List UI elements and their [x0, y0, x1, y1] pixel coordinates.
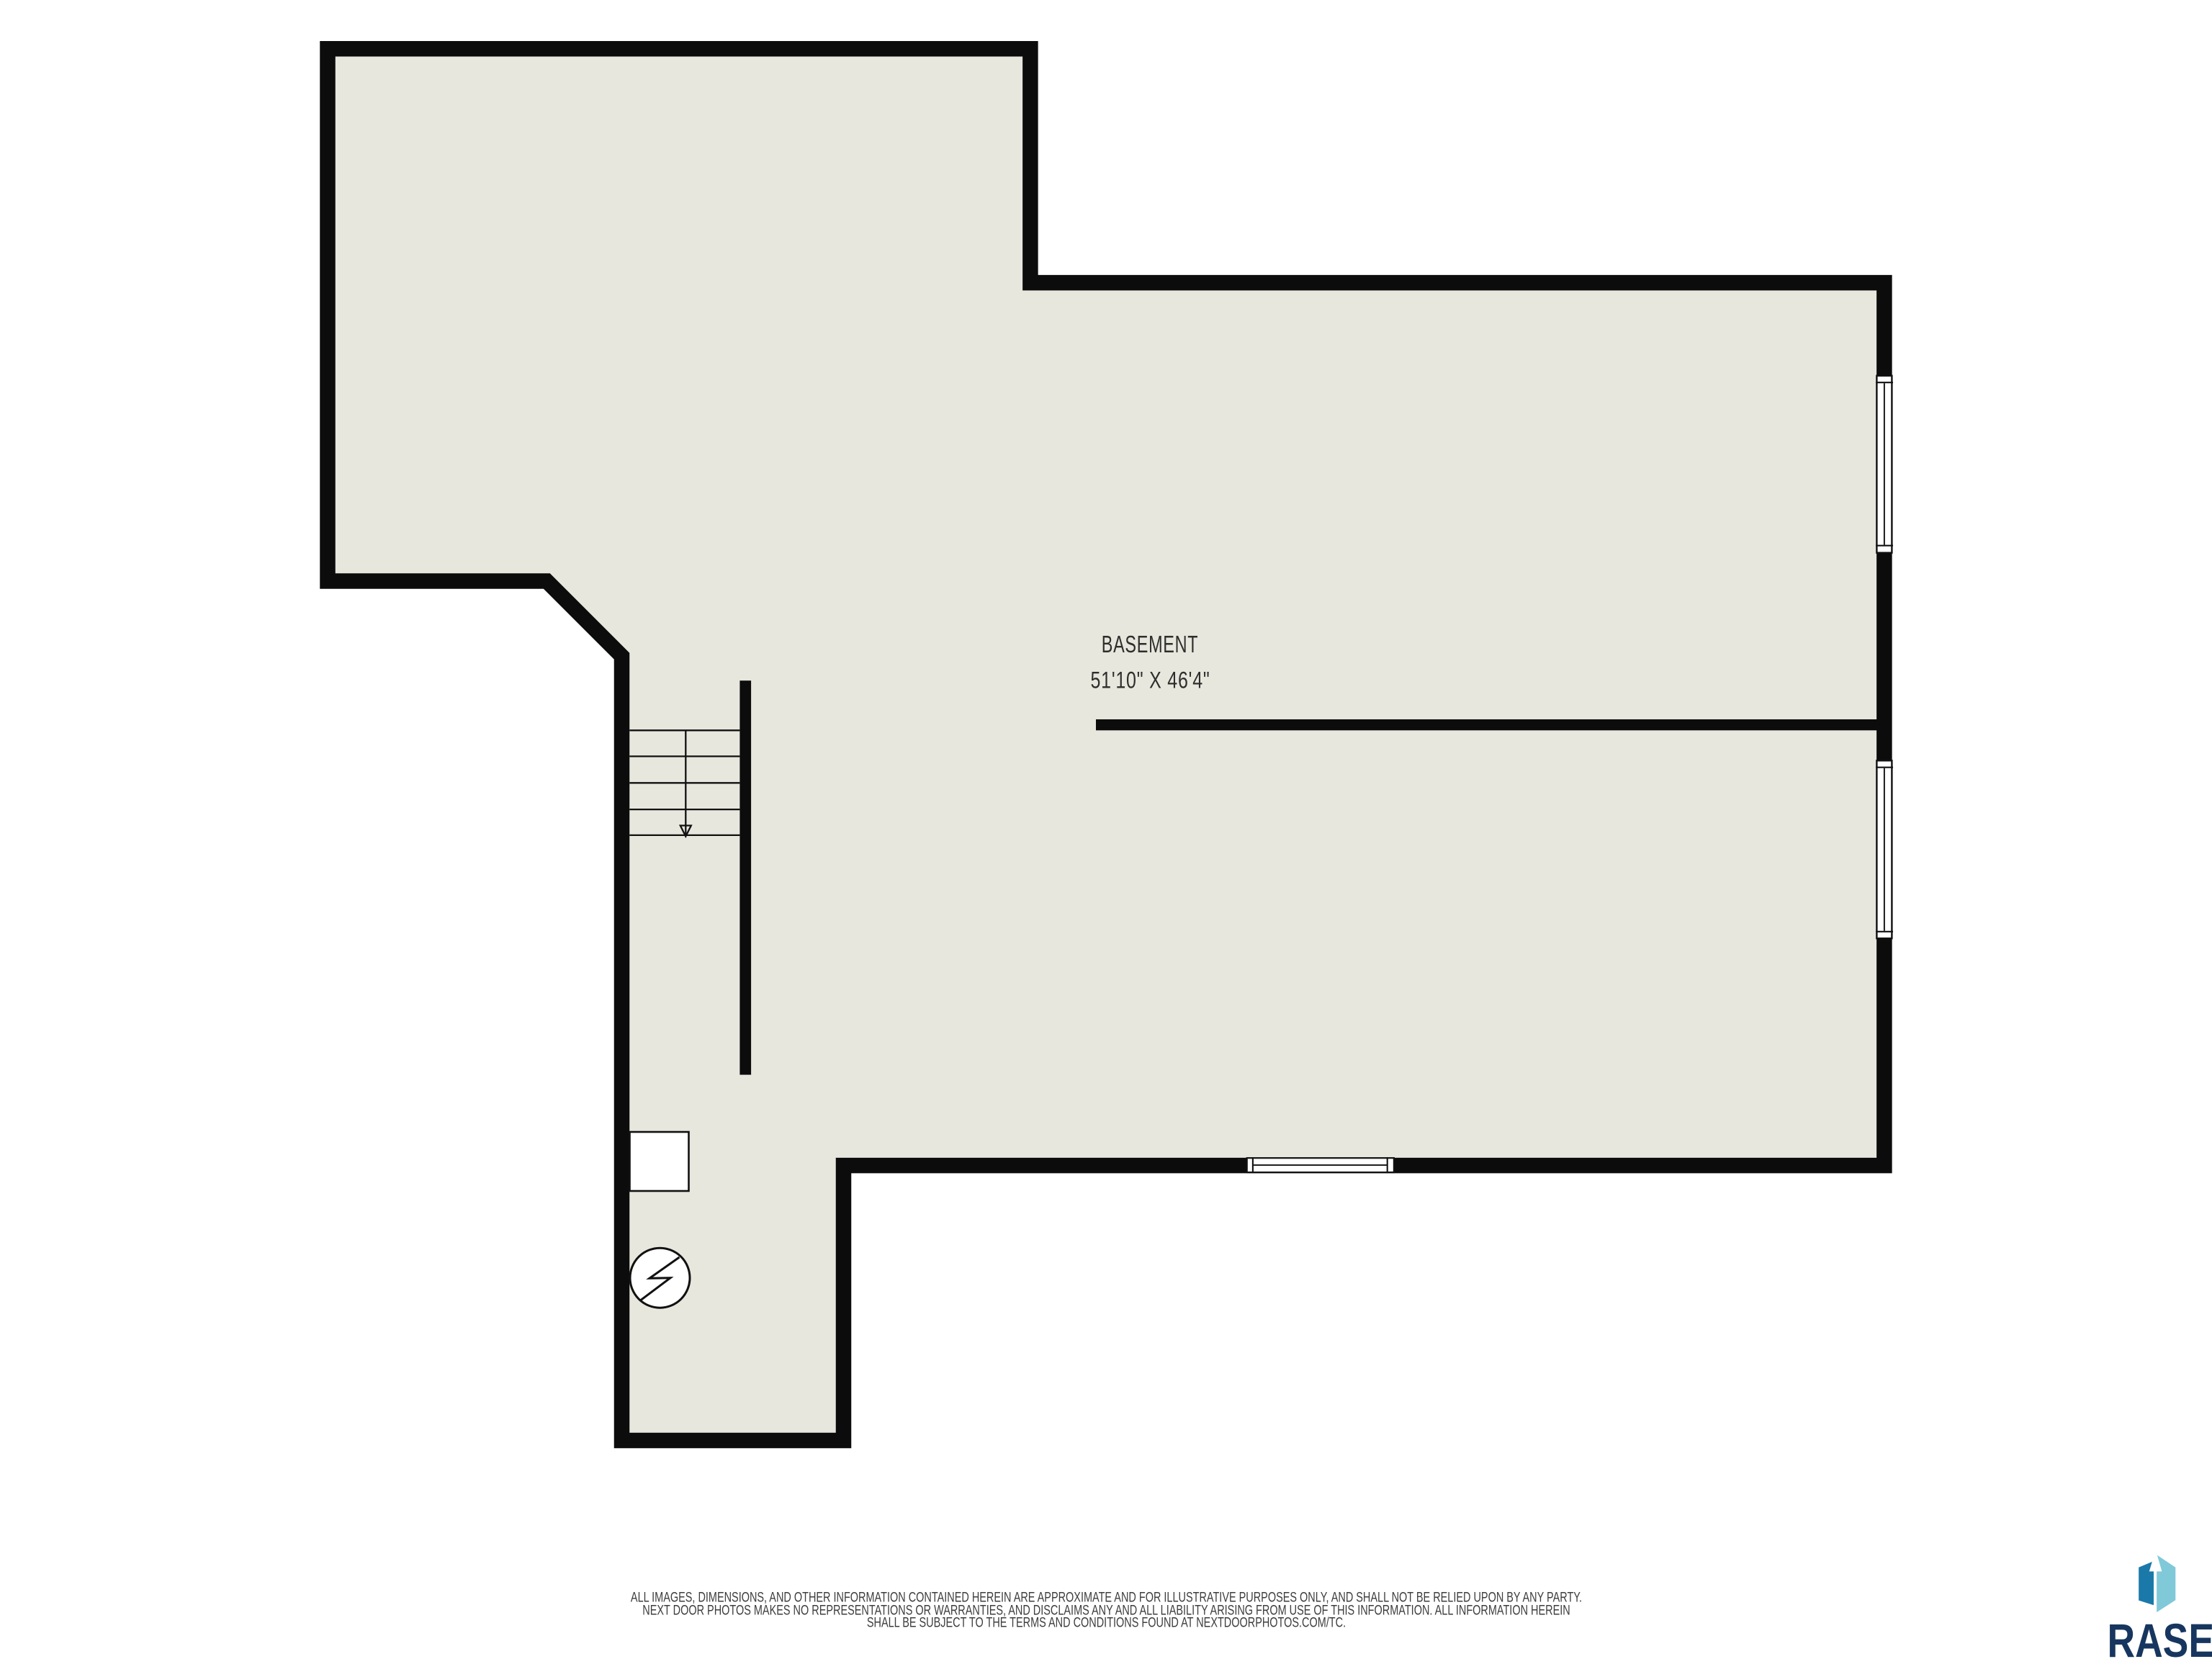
svg-text:BASEMENT: BASEMENT — [1102, 631, 1199, 658]
svg-text:RASE: RASE — [2107, 1614, 2212, 1659]
svg-text:51'10" X 46'4": 51'10" X 46'4" — [1090, 667, 1210, 693]
svg-text:SHALL BE SUBJECT TO THE TERMS: SHALL BE SUBJECT TO THE TERMS AND CONDIT… — [867, 1615, 1346, 1630]
